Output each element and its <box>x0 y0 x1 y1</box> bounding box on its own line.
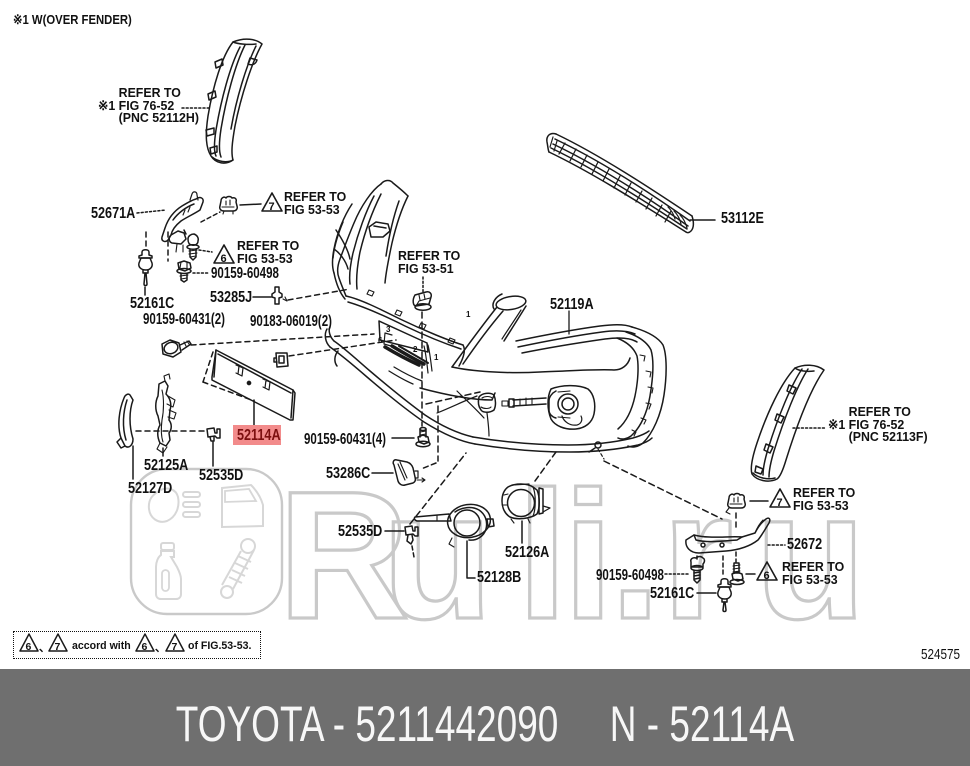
svg-text:3: 3 <box>386 325 391 334</box>
svg-text:7: 7 <box>777 497 783 509</box>
svg-text:1: 1 <box>466 310 471 319</box>
svg-text:6: 6 <box>764 570 770 582</box>
svg-text:6: 6 <box>378 336 383 345</box>
svg-text:7: 7 <box>269 201 275 213</box>
svg-text:6: 6 <box>221 253 227 265</box>
svg-text:1: 1 <box>434 353 439 362</box>
svg-text:2: 2 <box>413 345 418 354</box>
